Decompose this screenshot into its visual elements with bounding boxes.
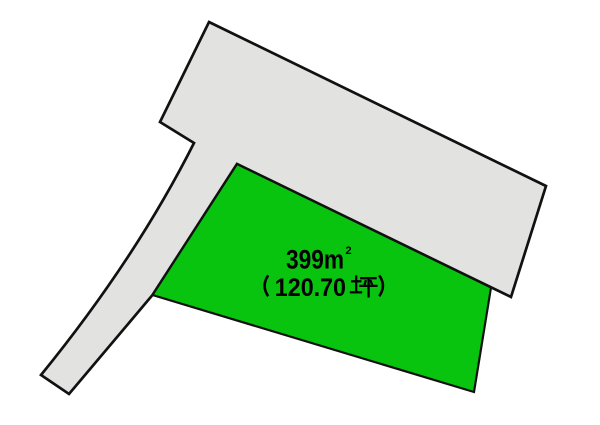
svg-text:399m: 399m — [286, 245, 344, 275]
svg-text:2: 2 — [346, 245, 352, 257]
svg-text:120.70: 120.70 — [275, 274, 346, 302]
